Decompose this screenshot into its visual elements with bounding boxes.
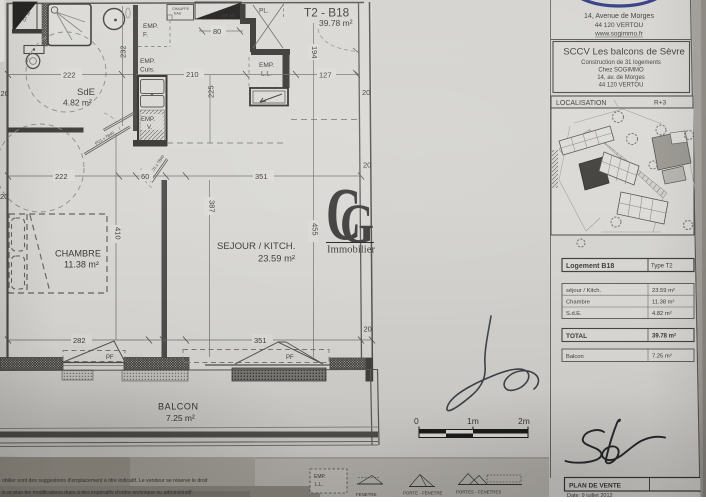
svg-text:Chambre: Chambre [566, 300, 590, 306]
svg-text:EMP.: EMP. [140, 58, 155, 65]
svg-text:4.82 m²: 4.82 m² [63, 98, 92, 108]
svg-text:225: 225 [207, 85, 216, 98]
svg-text:BALCON: BALCON [158, 402, 199, 412]
svg-text:60: 60 [141, 172, 149, 181]
svg-text:R+3: R+3 [654, 100, 666, 107]
svg-text:44 120 VERTOU: 44 120 VERTOU [599, 83, 644, 89]
svg-text:222: 222 [63, 71, 76, 80]
svg-text:11.38 m²: 11.38 m² [64, 260, 99, 270]
svg-text:obilier sont des suggestions d: obilier sont des suggestions d'emplaceme… [2, 478, 208, 484]
svg-text:282: 282 [73, 336, 86, 345]
svg-text:CHAMBRE: CHAMBRE [55, 249, 101, 259]
svg-text:CHAUFFE: CHAUFFE [172, 7, 190, 11]
svg-text:20: 20 [363, 161, 371, 170]
svg-text:FENETRE: FENETRE [356, 492, 377, 497]
svg-text:1m: 1m [467, 416, 479, 426]
svg-text:SCCV Les balcons de Sèvre: SCCV Les balcons de Sèvre [563, 47, 685, 58]
svg-text:14, Avenue de Morges: 14, Avenue de Morges [584, 13, 654, 20]
svg-text:PL.: PL. [259, 8, 269, 15]
svg-text:23.59 m²: 23.59 m² [258, 253, 295, 264]
svg-text:PORTES - FENETRES: PORTES - FENETRES [456, 490, 501, 495]
svg-text:Construction de 31 logements: Construction de 31 logements [581, 60, 661, 66]
svg-text:SEJOUR / KITCH.: SEJOUR / KITCH. [217, 241, 295, 252]
svg-text:EMP.: EMP. [314, 474, 326, 480]
svg-text:0: 0 [414, 416, 419, 426]
svg-text:410: 410 [114, 227, 123, 240]
svg-text:Immobilier: Immobilier [327, 244, 375, 256]
svg-text:V.: V. [147, 125, 152, 131]
svg-text:80: 80 [213, 27, 221, 36]
svg-text:210: 210 [186, 70, 199, 79]
svg-text:20: 20 [364, 325, 372, 334]
svg-text:Balcon: Balcon [566, 354, 584, 360]
svg-text:L.L.: L.L. [315, 482, 323, 488]
svg-text:EMP.: EMP. [141, 117, 155, 123]
svg-text:455: 455 [311, 223, 320, 236]
svg-text:EMP.: EMP. [259, 62, 274, 69]
svg-text:séjour / Kitch.: séjour / Kitch. [566, 288, 602, 294]
svg-text:20: 20 [362, 88, 370, 97]
svg-text:351: 351 [254, 336, 267, 345]
svg-text:387: 387 [208, 200, 217, 213]
svg-text:4.82 m²: 4.82 m² [652, 311, 672, 317]
svg-text:Logement B18: Logement B18 [566, 263, 614, 270]
svg-text:www.sogimmo.fr: www.sogimmo.fr [594, 31, 644, 38]
svg-text:23.59 m²: 23.59 m² [652, 288, 675, 294]
svg-text:351: 351 [255, 172, 268, 181]
svg-text:Type T2: Type T2 [651, 264, 673, 270]
svg-text:PORTE - FENETRE: PORTE - FENETRE [403, 491, 443, 496]
svg-text:à ce plan les modifications du: à ce plan les modifications dues à des i… [2, 490, 193, 496]
svg-text:EAU: EAU [174, 12, 182, 16]
svg-text:Cuis.: Cuis. [140, 67, 155, 74]
svg-text:GT 10: GT 10 [222, 13, 235, 18]
svg-text:127: 127 [319, 71, 332, 80]
svg-text:PF: PF [106, 355, 114, 361]
svg-text:S.d.E.: S.d.E. [566, 311, 582, 317]
svg-text:SdE: SdE [77, 87, 95, 98]
svg-text:20: 20 [1, 89, 9, 98]
svg-text:7.25 m²: 7.25 m² [652, 354, 672, 360]
svg-text:PLAN DE VENTE: PLAN DE VENTE [569, 483, 622, 490]
svg-text:39.78 m²: 39.78 m² [652, 333, 676, 340]
svg-text:EMP.: EMP. [143, 23, 158, 30]
svg-text:TOTAL: TOTAL [566, 333, 587, 340]
svg-text:222: 222 [55, 172, 68, 181]
svg-text:Date: 9 juillet 2012: Date: 9 juillet 2012 [567, 493, 613, 497]
svg-text:39.78 m²: 39.78 m² [319, 18, 353, 28]
svg-text:14, av. de Morges: 14, av. de Morges [597, 75, 645, 81]
svg-text:PF: PF [286, 355, 294, 361]
svg-text:232: 232 [119, 45, 128, 58]
svg-text:Chez SOGIMMO: Chez SOGIMMO [598, 68, 644, 74]
svg-text:7.25 m²: 7.25 m² [166, 413, 195, 423]
svg-text:LOCALISATION: LOCALISATION [556, 100, 606, 107]
svg-text:11.38 m²: 11.38 m² [652, 300, 675, 306]
svg-text:44 120 VERTOU: 44 120 VERTOU [595, 22, 644, 29]
svg-text:L.L.: L.L. [261, 71, 272, 78]
svg-text:2m: 2m [518, 416, 530, 426]
svg-text:194: 194 [310, 46, 319, 59]
svg-text:F.: F. [143, 32, 148, 39]
